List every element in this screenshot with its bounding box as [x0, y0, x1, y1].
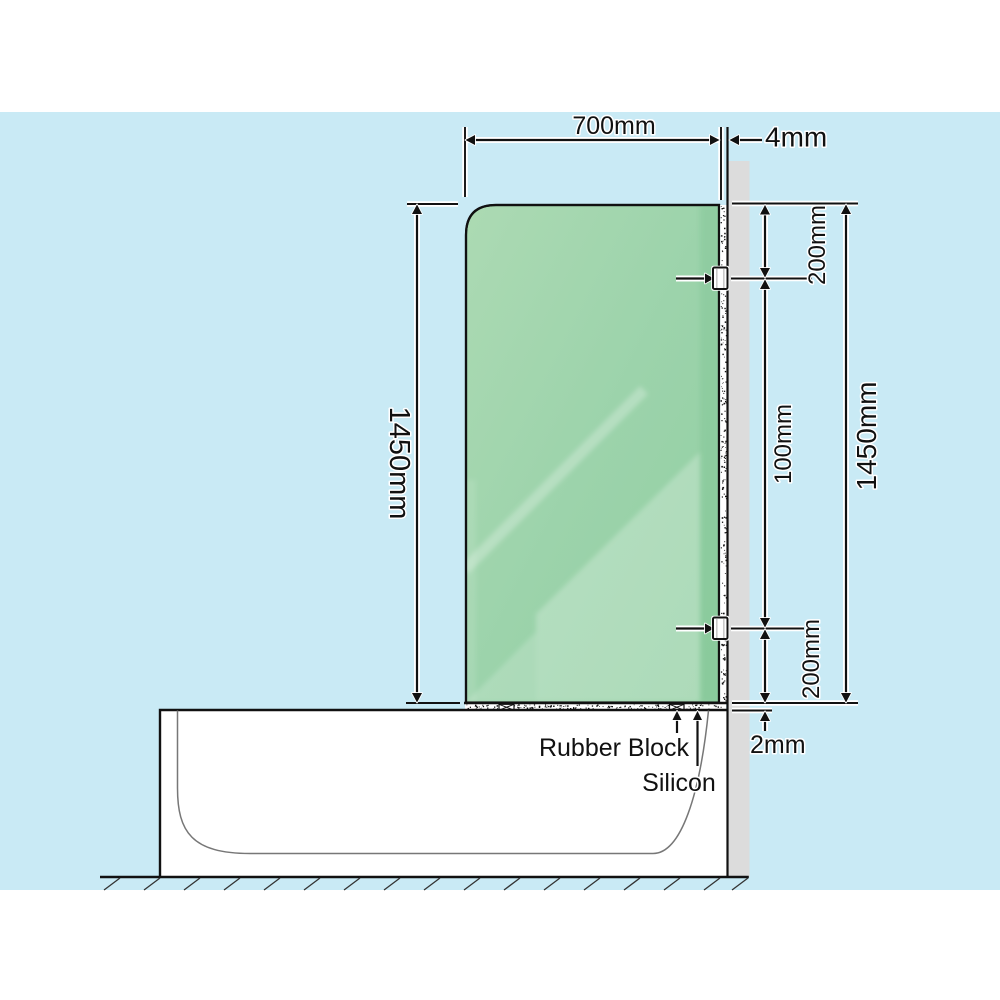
svg-text:4mm: 4mm — [765, 122, 827, 153]
svg-text:Rubber Block: Rubber Block — [539, 734, 690, 762]
svg-text:200mm: 200mm — [804, 205, 831, 285]
svg-text:200mm: 200mm — [798, 619, 825, 699]
svg-text:1450mm: 1450mm — [383, 407, 415, 520]
svg-text:Silicon: Silicon — [642, 769, 716, 797]
svg-text:100mm: 100mm — [770, 404, 797, 484]
svg-text:2mm: 2mm — [750, 731, 806, 759]
svg-text:700mm: 700mm — [572, 112, 655, 140]
svg-text:1450mm: 1450mm — [851, 382, 882, 491]
